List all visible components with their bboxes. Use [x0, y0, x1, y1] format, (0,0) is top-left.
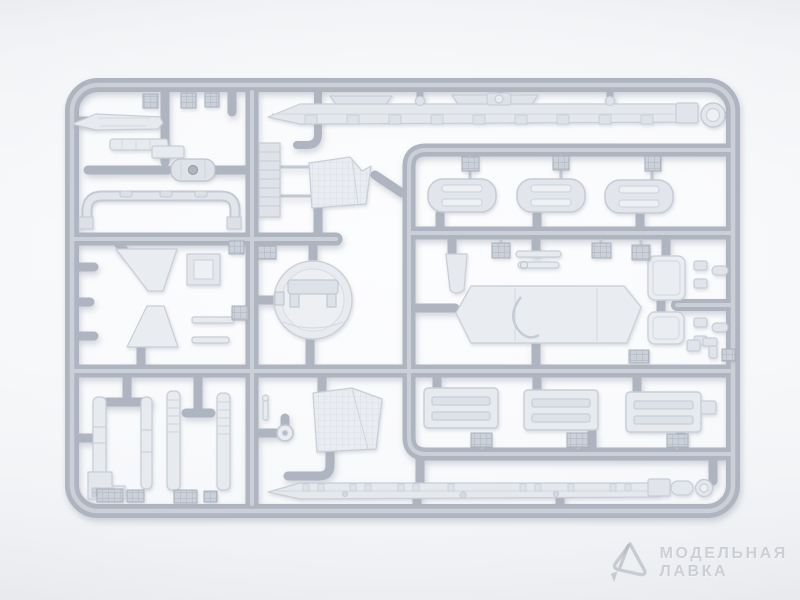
brand-name: МОДЕЛЬНАЯ ЛАВКА	[660, 545, 788, 581]
part-hull-panel-hexagon	[456, 286, 641, 343]
part-small-pin	[263, 395, 269, 420]
brand-name-line1: МОДЕЛЬНАЯ	[660, 545, 788, 563]
part-cylinder-drum	[171, 159, 215, 181]
part-track-link-strip	[259, 143, 280, 217]
gate-tabs-top-left	[143, 93, 219, 108]
sprue-frame	[0, 0, 800, 600]
part-float-sections	[428, 179, 673, 213]
part-windshield-lower	[313, 388, 382, 452]
part-hatch-panels	[648, 256, 685, 344]
part-round-cap	[701, 103, 725, 127]
part-paddle	[446, 254, 467, 293]
product-photo: МОДЕЛЬНАЯ ЛАВКА	[0, 0, 800, 600]
part-u-bracket	[187, 254, 220, 285]
brand-name-line2: ЛАВКА	[660, 563, 788, 581]
part-stowage-boxes	[424, 388, 716, 432]
crystal-logo-icon	[600, 538, 650, 588]
part-turret-ring	[274, 261, 352, 339]
part-small-wheel	[277, 425, 293, 441]
watermark-brand: МОДЕЛЬНАЯ ЛАВКА	[600, 538, 788, 588]
